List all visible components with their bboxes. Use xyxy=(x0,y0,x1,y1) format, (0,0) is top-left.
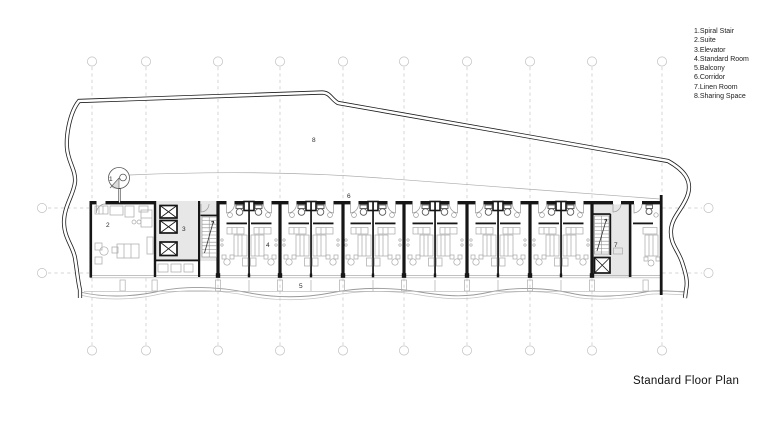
plan-label-standard-room: 4 xyxy=(266,242,270,249)
plan-label-elevator: 3 xyxy=(182,226,186,233)
plan-label-suite: 2 xyxy=(106,222,110,229)
spiral-stair xyxy=(109,168,130,204)
legend-item-balcony: 5.Balcony xyxy=(694,64,749,73)
plan-label-corridor: 6 xyxy=(347,193,351,200)
legend-item-standard-room: 4.Standard Room xyxy=(694,55,749,64)
legend-item-suite: 2.Suite xyxy=(694,36,749,45)
legend-item-linen-room: 7.Linen Room xyxy=(694,83,749,92)
floor-plan-drawing: 1 2 3 4 5 6 7 8 xyxy=(0,0,780,438)
plan-label-balcony: 5 xyxy=(299,283,303,290)
legend-item-corridor: 6.Corridor xyxy=(694,73,749,82)
legend-item-spiral-stair: 1.Spiral Stair xyxy=(694,27,749,36)
corridor-divider-curve xyxy=(130,173,661,199)
floor-plan-sheet: 1 2 3 4 5 6 7 8 1.Spiral Stair 2.Suite 3… xyxy=(0,0,780,438)
elevator-shafts xyxy=(160,206,177,256)
legend-item-sharing-space: 8.Sharing Space xyxy=(694,92,749,101)
balcony-edge xyxy=(80,287,686,299)
plan-label-sharing-space: 8 xyxy=(312,137,316,144)
plan-label-linen-room: 7 xyxy=(614,242,618,249)
drawing-title: Standard Floor Plan xyxy=(633,375,739,387)
stair-east xyxy=(593,213,611,255)
legend: 1.Spiral Stair 2.Suite 3.Elevator 4.Stan… xyxy=(694,27,749,101)
legend-item-elevator: 3.Elevator xyxy=(694,46,749,55)
plan-label-spiral-stair: 1 xyxy=(109,176,113,183)
